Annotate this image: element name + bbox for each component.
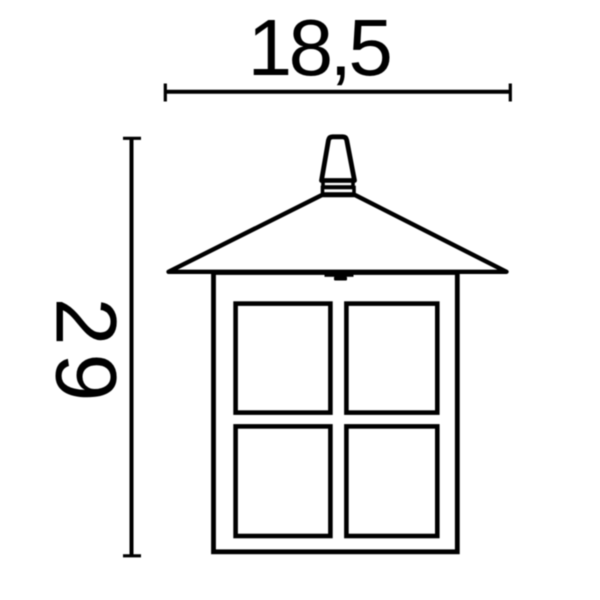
svg-text:18,5: 18,5	[248, 3, 391, 92]
svg-text:29: 29	[38, 298, 134, 410]
